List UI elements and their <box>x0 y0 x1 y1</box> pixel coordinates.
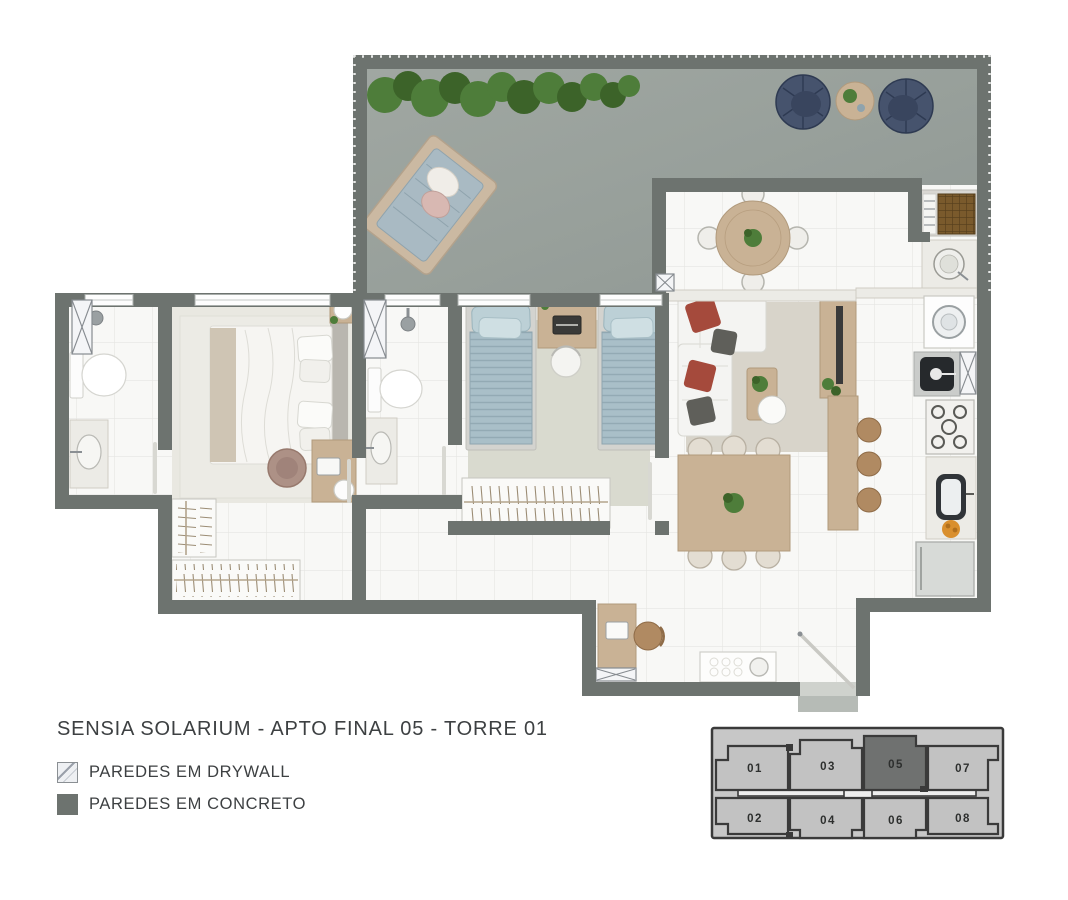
keyplan-label-03: 03 <box>820 761 836 773</box>
legend-label: PAREDES EM CONCRETO <box>89 795 306 814</box>
shaft-bathroom2 <box>364 300 386 358</box>
keyplan-label-01: 01 <box>747 763 763 775</box>
barbecue-grill <box>920 190 977 236</box>
bar-stool <box>857 452 881 476</box>
single-bed-1 <box>466 300 536 450</box>
gourmet-sink-counter <box>922 240 977 290</box>
keyplan-label-04: 04 <box>820 815 836 827</box>
bedroom2-wardrobe <box>462 478 610 528</box>
kitchen-bar <box>828 396 858 530</box>
page-title: SENSIA SOLARIUM - APTO FINAL 05 - TORRE … <box>57 718 548 741</box>
caption-block: SENSIA SOLARIUM - APTO FINAL 05 - TORRE … <box>57 718 548 825</box>
concrete-swatch-icon <box>57 794 78 815</box>
vanity-sink <box>70 420 108 488</box>
terrace-side-table <box>836 82 874 120</box>
vanity-sink <box>366 418 397 484</box>
shoe-bench <box>596 668 636 681</box>
keyplan-label-07: 07 <box>955 763 971 775</box>
fruit-bowl <box>942 520 960 538</box>
drywall-swatch-icon <box>57 762 78 783</box>
keyplan-label-02: 02 <box>747 813 763 825</box>
tv-icon <box>836 306 843 384</box>
refrigerator <box>916 542 974 596</box>
legend-item-concrete: PAREDES EM CONCRETO <box>57 793 548 815</box>
wardrobe-horizontal <box>172 560 300 601</box>
tv-panel <box>820 298 856 398</box>
legend-label: PAREDES EM DRYWALL <box>89 763 290 782</box>
washing-machine <box>924 296 974 348</box>
shaft-gourmet <box>656 274 674 291</box>
toilet <box>70 352 126 398</box>
keyplan-label-06: 06 <box>888 815 904 827</box>
shaft-laundry <box>960 352 976 394</box>
office-chair <box>634 622 662 650</box>
stove-cooktop <box>926 400 974 454</box>
bar-stool <box>857 488 881 512</box>
floorplan-page: { "title": "SENSIA SOLARIUM - APTO FINAL… <box>0 0 1068 900</box>
shaft-bathroom1 <box>72 300 92 354</box>
master-bedroom <box>163 298 356 502</box>
laundry-sink <box>914 352 960 396</box>
keyplan-label-08: 08 <box>955 813 971 825</box>
keyplan-label-05: 05 <box>888 759 904 771</box>
dining-area <box>678 436 790 570</box>
keyplan: 01 03 05 07 02 04 06 08 <box>712 728 1003 839</box>
entry-console <box>700 652 776 682</box>
legend-item-drywall: PAREDES EM DRYWALL <box>57 761 548 783</box>
wardrobe-vertical <box>172 499 216 557</box>
entry-landing <box>798 696 858 712</box>
bar-stool <box>857 418 881 442</box>
living-window-sill <box>666 290 856 301</box>
entry-threshold <box>800 682 856 696</box>
kitchen-sink-counter <box>926 457 976 539</box>
